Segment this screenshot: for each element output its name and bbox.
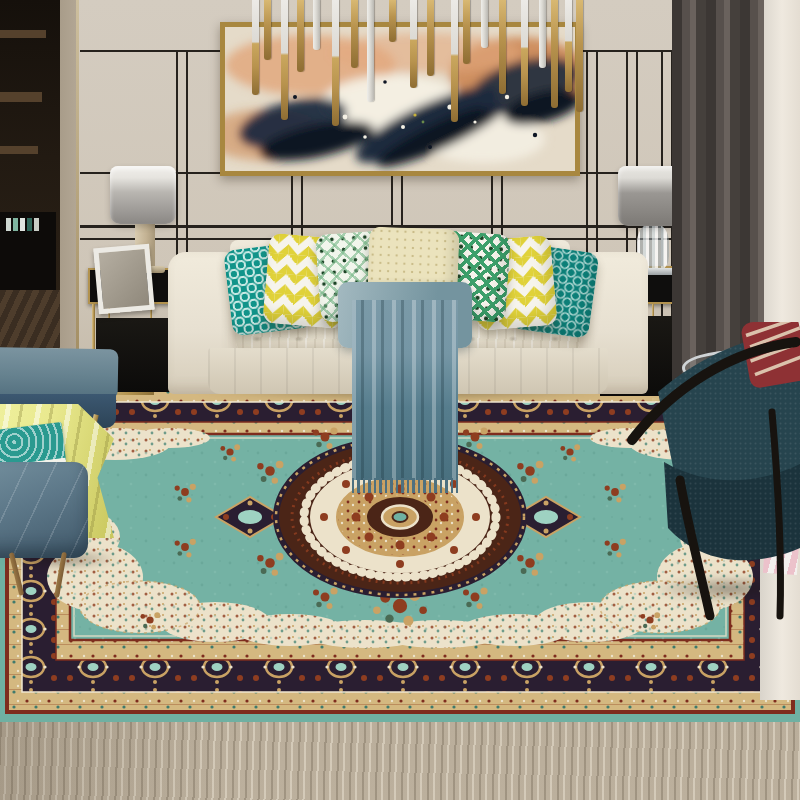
pendant-rod [410, 0, 417, 88]
pendant-rod [332, 0, 339, 126]
throw-blanket-fringe [352, 478, 458, 493]
table-lamp-left [110, 166, 176, 224]
living-room-scene [0, 0, 800, 800]
armchair [624, 322, 800, 620]
pendant-rod [521, 0, 528, 106]
console-item [27, 218, 32, 231]
console-item [13, 218, 18, 231]
pendant-rod [499, 0, 506, 94]
pendant-rod [427, 0, 434, 76]
leather-stool [0, 462, 88, 558]
pendant-rod [367, 0, 374, 102]
bench [0, 347, 118, 400]
pendant-rod [297, 0, 304, 72]
pendant-rod [539, 0, 546, 68]
pendant-rod [481, 0, 488, 48]
console-item [6, 218, 11, 231]
pendant-rod [264, 0, 271, 60]
pendant-rod [463, 0, 470, 64]
pendant-rod [252, 0, 259, 95]
pendant-rod [565, 0, 572, 92]
media-console [0, 212, 56, 290]
pendant-rod [281, 0, 288, 120]
pendant-rod [551, 0, 558, 108]
doorway-floor [0, 290, 60, 348]
throw-blanket [352, 300, 458, 480]
pendant-rod [576, 0, 583, 112]
pendant-rod [451, 0, 458, 122]
pendant-rod [351, 0, 358, 68]
pendant-rod [389, 0, 396, 42]
console-item [34, 218, 39, 231]
console-item [20, 218, 25, 231]
pendant-rod [313, 0, 320, 50]
photo-frame [93, 244, 155, 315]
